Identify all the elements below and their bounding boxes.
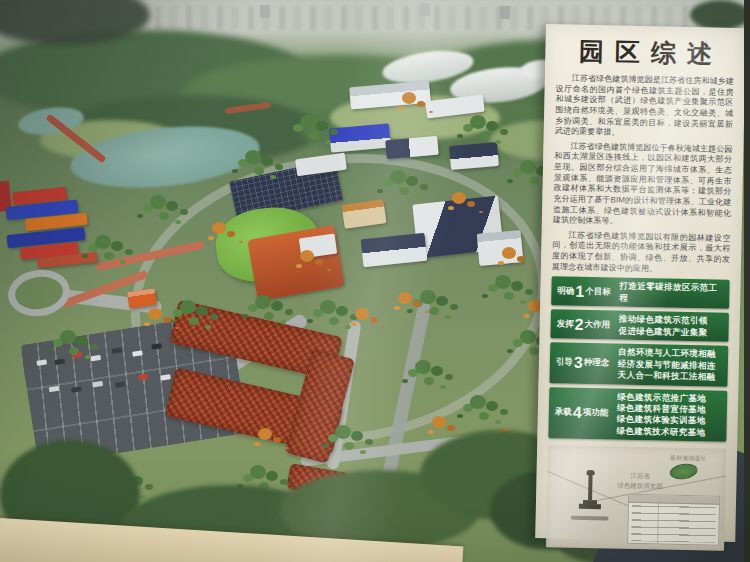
goal-prefix: 发挥	[557, 318, 574, 330]
panel-title: 园区综述	[556, 34, 735, 71]
goal-number: 1	[575, 283, 584, 299]
goal-bar-3-items: 自然环境与人工环境相融 经济发展与节能减排相连 天人合一和科技工法相融	[618, 347, 723, 384]
goal-item: 绿色建筑技术研究基地	[616, 426, 720, 440]
location-minimap: 江苏省 绿色建筑博览园 春秋淹城遗址	[546, 446, 726, 552]
building	[477, 230, 524, 266]
panel-paragraph: 江苏省绿色建筑博览园是江苏省住房和城乡建设厅命名的国内首个绿色建筑主题公园，是住…	[555, 73, 734, 140]
monument-pole	[588, 474, 593, 500]
tree-cluster	[300, 115, 316, 129]
goal-suffix: 项功能	[583, 407, 609, 420]
goal-bar-4-items: 绿色建筑示范推广基地 绿色建筑科普宣传基地 绿色建筑体验实训基地 绿色建筑技术研…	[616, 391, 721, 439]
tree-cluster	[150, 195, 166, 209]
autumn-tree-cluster	[452, 192, 466, 204]
minimap-park-label: 江苏省 绿色建筑博览园	[617, 471, 663, 491]
yancheng-site-icon	[669, 462, 699, 481]
autumn-tree-cluster	[432, 416, 446, 428]
goal-bar-2-label: 发挥2大作用	[557, 316, 613, 333]
tree-cluster	[420, 290, 436, 304]
tree-cluster	[95, 235, 111, 249]
autumn-tree-cluster	[355, 308, 369, 320]
park-label: 绿色建筑博览园	[617, 481, 663, 492]
autumn-tree-cluster	[300, 250, 314, 262]
goal-bar-1-items: 打造近零碳排放区示范工程	[619, 281, 723, 306]
goal-bar-3-label: 引导3种理念	[556, 355, 612, 372]
goal-item: 促进绿色建筑产业集聚	[618, 325, 722, 339]
tree-cluster	[60, 330, 76, 344]
tree-cluster	[255, 295, 271, 309]
autumn-tree-cluster	[402, 92, 416, 104]
goal-number: 4	[573, 405, 582, 421]
goal-prefix: 承载	[555, 407, 572, 419]
container-building	[2, 181, 110, 275]
autumn-tree-cluster	[148, 308, 162, 320]
goal-item: 天人合一和科技工法相融	[618, 370, 722, 384]
tree-cluster	[495, 275, 511, 289]
tree-cluster	[245, 150, 261, 164]
photo-of-exhibition-board: 园区综述 江苏省绿色建筑博览园是江苏省住房和城乡建设厅命名的国内首个绿色建筑主题…	[0, 0, 750, 562]
tree-cluster	[520, 160, 536, 174]
tree-cluster	[470, 395, 486, 409]
goal-prefix: 明确	[557, 285, 574, 297]
tree-cluster	[470, 115, 486, 129]
panel-paragraph: 江苏省绿色建筑博览园位于春秋淹城主题公园和西太湖景区连接线上，以园区和建筑两大部…	[553, 141, 733, 230]
goal-bar-4: 承载4项功能 绿色建筑示范推广基地 绿色建筑科普宣传基地 绿色建筑体验实训基地 …	[548, 387, 727, 443]
autumn-tree-cluster	[212, 222, 226, 234]
goal-bar-2: 发挥2大作用 推动绿色建筑示范引领 促进绿色建筑产业集聚	[550, 309, 729, 342]
goal-suffix: 大作用	[584, 319, 610, 332]
goal-bar-2-items: 推动绿色建筑示范引领 促进绿色建筑产业集聚	[618, 314, 722, 339]
parked-cars	[36, 359, 47, 366]
tree-cluster	[390, 170, 406, 184]
autumn-tree-cluster	[398, 292, 412, 304]
goal-suffix: 个目标	[585, 286, 611, 299]
goal-suffix: 种理念	[584, 357, 610, 370]
tree-cluster	[320, 300, 336, 314]
minimap-site-label: 春秋淹城遗址	[670, 454, 706, 464]
autumn-tree-cluster	[258, 428, 272, 440]
tree-cluster	[180, 300, 196, 314]
monument-base	[579, 504, 601, 509]
table-rows	[631, 503, 716, 543]
goal-number: 3	[574, 355, 583, 371]
tree-cluster	[335, 425, 351, 439]
tree-cluster	[250, 465, 266, 479]
panel-paragraph: 江苏省绿色建筑博览园以有限的园林建设空间，创造出无限的功能体验和技术展示，最大程…	[552, 230, 731, 276]
goal-bar-4-label: 承载4项功能	[555, 405, 611, 422]
overview-panel: 园区综述 江苏省绿色建筑博览园是江苏省住房和城乡建设厅命名的国内首个绿色建筑主题…	[535, 24, 746, 542]
tree-cluster	[520, 330, 536, 344]
goal-number: 2	[575, 316, 584, 332]
goal-bar-3: 引导3种理念 自然环境与人工环境相融 经济发展与节能减排相连 天人合一和科技工法…	[549, 342, 728, 386]
monument-caption-smudge	[571, 516, 609, 521]
autumn-tree-cluster	[502, 247, 516, 259]
goal-item: 打造近零碳排放区示范工程	[619, 281, 723, 306]
minimap-data-table	[627, 494, 720, 546]
solar-roof-building	[449, 142, 499, 170]
photo-edge	[744, 0, 750, 562]
goal-bar-1: 明确1个目标 打造近零碳排放区示范工程	[551, 276, 730, 309]
goal-prefix: 引导	[556, 357, 573, 369]
monument-icon	[575, 470, 606, 513]
goal-bar-1-label: 明确1个目标	[557, 283, 613, 300]
foliage	[690, 0, 750, 30]
tree-cluster	[415, 360, 431, 374]
